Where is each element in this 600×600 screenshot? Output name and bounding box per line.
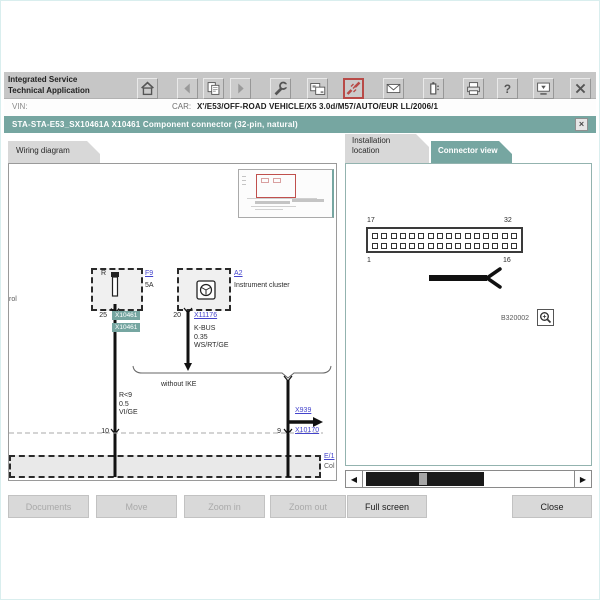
forward-arrow-icon bbox=[231, 78, 250, 99]
fuse-rating: 5A bbox=[145, 282, 154, 290]
cluster-link[interactable]: A2 bbox=[234, 270, 243, 277]
connector-pin bbox=[474, 243, 480, 249]
dialog-title-bar: STA-STA-E53_SX10461A X10461 Component co… bbox=[4, 116, 596, 133]
pin-number-25: 25 bbox=[93, 312, 107, 319]
help-icon: ? bbox=[498, 78, 517, 99]
minimize-tray-button[interactable] bbox=[533, 78, 554, 99]
connector-pin bbox=[381, 233, 387, 239]
connector-pin bbox=[372, 243, 378, 249]
car-label: CAR: bbox=[172, 102, 191, 111]
wire-color: VI/GE bbox=[119, 409, 138, 417]
connector-pin bbox=[492, 233, 498, 239]
magnifier-icon bbox=[538, 310, 553, 325]
pin-label-17: 17 bbox=[367, 217, 375, 225]
pin-number-10: 10 bbox=[95, 428, 109, 435]
tab-connector-view[interactable]: Connector view bbox=[431, 141, 512, 163]
dialog-close-button[interactable]: × bbox=[575, 118, 588, 131]
close-icon bbox=[571, 78, 590, 99]
connector-pin bbox=[492, 243, 498, 249]
home-button[interactable] bbox=[137, 78, 158, 99]
cluster-name: Instrument cluster bbox=[234, 282, 290, 290]
scrollbar-left-button[interactable]: ◀ bbox=[346, 471, 363, 487]
bottom-box-link[interactable]: E/1 bbox=[324, 453, 335, 460]
connector-pin bbox=[465, 243, 471, 249]
fuse-designator: R bbox=[101, 270, 106, 278]
connector-pin bbox=[428, 233, 434, 239]
offpage-arrowhead bbox=[313, 417, 323, 427]
fuse-symbol-cap bbox=[111, 272, 119, 277]
connector-pin bbox=[381, 243, 387, 249]
full-screen-button[interactable]: Full screen bbox=[347, 495, 427, 518]
connector-view-panel: 17 32 1 16 B320002 bbox=[345, 163, 592, 466]
tab-wiring-diagram[interactable]: Wiring diagram bbox=[8, 141, 100, 163]
cutoff-edge-text: rol bbox=[9, 296, 17, 303]
offpage-link[interactable]: X939 bbox=[295, 407, 311, 414]
pin-label-32: 32 bbox=[504, 217, 512, 225]
junction-chevron bbox=[184, 308, 192, 313]
cluster-connector-link[interactable]: X11176 bbox=[194, 312, 217, 319]
connector-view-button[interactable] bbox=[343, 78, 364, 99]
dialog-title: STA-STA-E53_SX10461A X10461 Component co… bbox=[12, 120, 298, 129]
scrollbar-thumb-grip[interactable] bbox=[419, 473, 427, 485]
connector-pin bbox=[418, 233, 424, 239]
tab-installation-line2: location bbox=[352, 146, 429, 156]
connector-pin bbox=[455, 233, 461, 239]
battery-icon bbox=[424, 78, 443, 99]
app-title: Integrated Service Technical Application bbox=[8, 75, 90, 97]
connector-side-view-drawing bbox=[424, 264, 514, 294]
tab-installation-line1: Installation bbox=[352, 136, 429, 146]
zoom-out-button[interactable]: Zoom out bbox=[270, 495, 346, 518]
connector-pin bbox=[455, 243, 461, 249]
move-button[interactable]: Move bbox=[96, 495, 177, 518]
back-arrow-icon bbox=[178, 78, 197, 99]
dual-screens-button[interactable] bbox=[307, 78, 328, 99]
connector-pin bbox=[483, 233, 489, 239]
variant-note: without IKE bbox=[161, 381, 196, 389]
variant-bracket bbox=[133, 366, 331, 378]
app-title-line2: Technical Application bbox=[8, 86, 90, 97]
copy-document-icon bbox=[204, 78, 223, 99]
help-button[interactable]: ? bbox=[497, 78, 518, 99]
connector-pin bbox=[465, 233, 471, 239]
wrench-icon bbox=[271, 78, 290, 99]
connector-pin bbox=[400, 233, 406, 239]
forward-button[interactable] bbox=[230, 78, 251, 99]
copy-document-button[interactable] bbox=[203, 78, 224, 99]
connector-pin bbox=[502, 243, 508, 249]
close-app-button[interactable] bbox=[570, 78, 591, 99]
connector-highlight-label: X10461 bbox=[112, 311, 140, 320]
print-button[interactable] bbox=[463, 78, 484, 99]
connector-pin bbox=[437, 243, 443, 249]
connector-pin bbox=[428, 243, 434, 249]
bus-gauge: 0.35 bbox=[194, 334, 208, 342]
close-button[interactable]: Close bbox=[512, 495, 592, 518]
image-reference: B320002 bbox=[501, 315, 529, 322]
wire-arrowhead bbox=[184, 363, 192, 371]
mail-envelope-icon bbox=[384, 78, 403, 99]
connector-face-drawing bbox=[366, 227, 523, 253]
connector-pin-row-bottom bbox=[372, 243, 517, 249]
wiring-diagram-canvas bbox=[9, 164, 336, 480]
home-icon bbox=[138, 78, 157, 99]
connector-pin bbox=[372, 233, 378, 239]
junction-connector-link[interactable]: X10170 bbox=[295, 427, 319, 434]
connector-pin bbox=[400, 243, 406, 249]
screen-tray-icon bbox=[534, 78, 553, 99]
bus-name: K-BUS bbox=[194, 325, 215, 333]
connector-highlight-label: X10461 bbox=[112, 323, 140, 332]
connector-pin bbox=[483, 243, 489, 249]
pin-number-9: 9 bbox=[267, 428, 281, 435]
ista-application-window: { "colors": {"accent_teal":"#76a6a1","li… bbox=[0, 0, 600, 600]
car-value: X'/E53/OFF-ROAD VEHICLE/X5 3.0d/M57/AUTO… bbox=[197, 102, 438, 111]
service-functions-button[interactable] bbox=[270, 78, 291, 99]
pin-number-20: 20 bbox=[167, 312, 181, 319]
svg-text:?: ? bbox=[504, 83, 511, 96]
documents-button[interactable]: Documents bbox=[8, 495, 89, 518]
mail-button[interactable] bbox=[383, 78, 404, 99]
bus-color: WS/RT/GE bbox=[194, 342, 228, 350]
connector-pin bbox=[418, 243, 424, 249]
connector-pin bbox=[446, 233, 452, 239]
dual-screens-icon bbox=[308, 78, 327, 99]
app-title-line1: Integrated Service bbox=[8, 75, 90, 86]
connector-panel-scrollbar[interactable]: ◀ ▶ bbox=[345, 470, 592, 488]
pin-label-1: 1 bbox=[367, 257, 371, 265]
connector-pin bbox=[409, 243, 415, 249]
battery-button[interactable] bbox=[423, 78, 444, 99]
connector-pin bbox=[511, 233, 517, 239]
connector-pin bbox=[437, 233, 443, 239]
connector-pin bbox=[502, 233, 508, 239]
connector-pin bbox=[446, 243, 452, 249]
connector-pin bbox=[474, 233, 480, 239]
fuse-symbol-body bbox=[113, 277, 118, 296]
printer-icon bbox=[464, 78, 483, 99]
back-button[interactable] bbox=[177, 78, 198, 99]
zoom-in-button[interactable]: Zoom in bbox=[184, 495, 265, 518]
wire-gauge: 0.5 bbox=[119, 401, 129, 409]
connector-pin bbox=[391, 243, 397, 249]
connector-pin bbox=[511, 243, 517, 249]
instrument-cluster-icon bbox=[197, 281, 215, 299]
scrollbar-right-button[interactable]: ▶ bbox=[574, 471, 591, 487]
connector-pin bbox=[391, 233, 397, 239]
fuse-link[interactable]: F9 bbox=[145, 270, 153, 277]
connector-pin bbox=[409, 233, 415, 239]
zoom-image-button[interactable] bbox=[537, 309, 554, 326]
wiring-diagram-panel: rol R F9 5A 25 X10461 X10461 A2 Instrume… bbox=[8, 163, 337, 481]
bottom-box-text: Col bbox=[324, 463, 335, 470]
connector-plug-icon bbox=[345, 80, 362, 97]
tab-installation-location[interactable]: Installation location bbox=[345, 134, 429, 163]
vin-label: VIN: bbox=[12, 102, 28, 111]
wire-name: R<9 bbox=[119, 392, 132, 400]
connector-pin-row-top bbox=[372, 233, 517, 239]
